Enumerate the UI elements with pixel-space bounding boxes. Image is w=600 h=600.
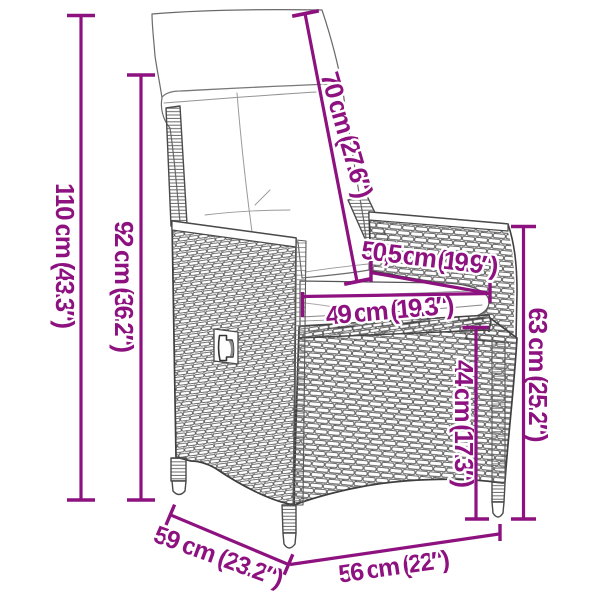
svg-text:63 cm (25.2″): 63 cm (25.2″) [523, 308, 553, 443]
svg-text:92 cm (36.2″): 92 cm (36.2″) [109, 221, 139, 353]
svg-text:110 cm (43.3″): 110 cm (43.3″) [50, 183, 80, 329]
